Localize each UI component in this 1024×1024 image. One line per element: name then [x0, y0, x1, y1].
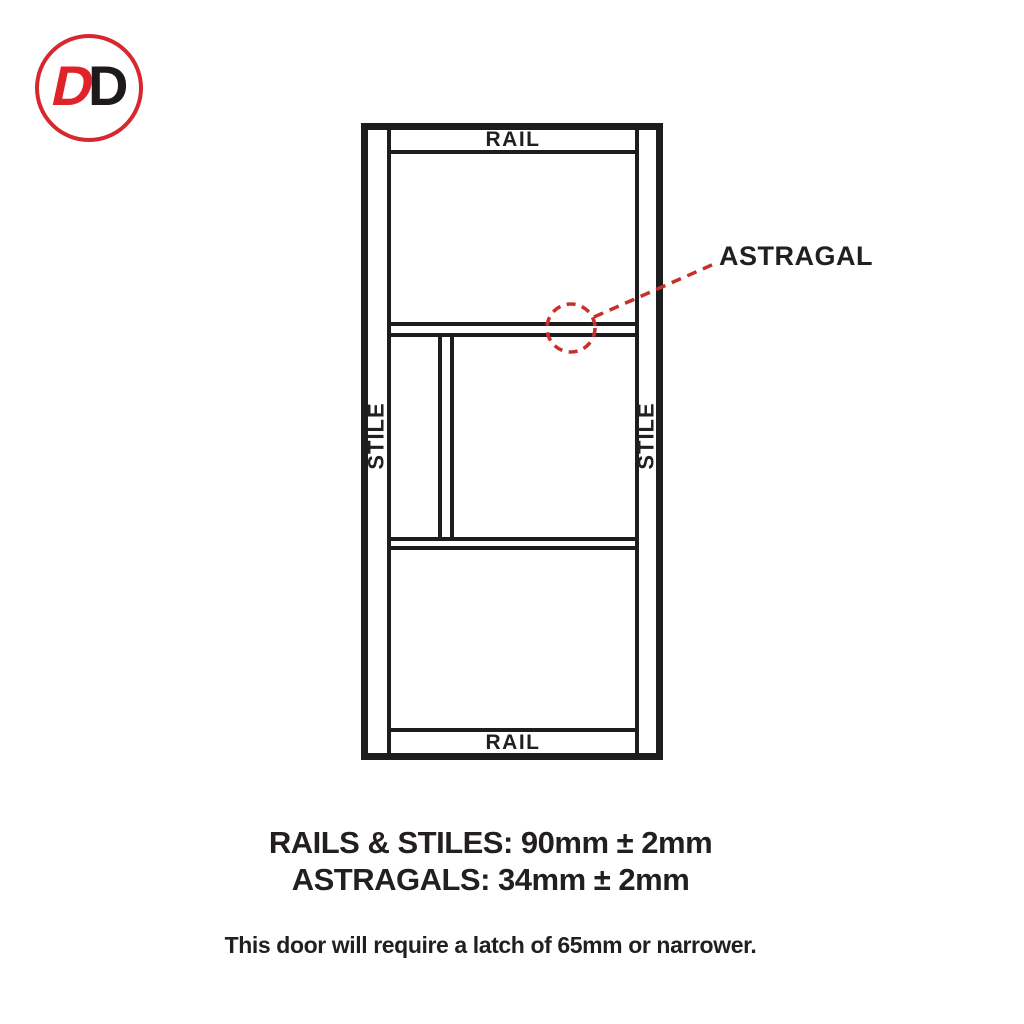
astragal-lower-line-1: [387, 537, 639, 541]
stile-left-label: STILE: [364, 402, 390, 469]
latch-note: This door will require a latch of 65mm o…: [0, 932, 981, 959]
rails-stiles-dimension: RAILS & STILES: 90mm ± 2mm: [0, 824, 981, 861]
astragal-vertical-line-2: [450, 337, 454, 537]
stile-right-label: STILE: [634, 402, 660, 469]
rail-top-label: RAIL: [387, 130, 639, 150]
door-diagram: RAIL RAIL STILE STILE: [361, 123, 663, 760]
rail-bottom-label: RAIL: [387, 732, 639, 753]
astragal-lower-line-2: [387, 546, 639, 550]
astragals-dimension: ASTRAGALS: 34mm ± 2mm: [0, 861, 981, 898]
spec-text-block: RAILS & STILES: 90mm ± 2mm ASTRAGALS: 34…: [0, 824, 981, 959]
brand-logo-text: DD: [53, 58, 126, 118]
astragal-upper-line-1: [387, 322, 639, 326]
astragal-vertical-line-1: [438, 337, 442, 537]
astragal-label: ASTRAGAL: [719, 241, 873, 272]
astragal-upper-line-2: [387, 333, 639, 337]
door-spec-sheet: { "logo": { "d1": "D", "d2": "D" }, "dia…: [0, 0, 1024, 1024]
brand-logo: DD: [35, 34, 143, 142]
